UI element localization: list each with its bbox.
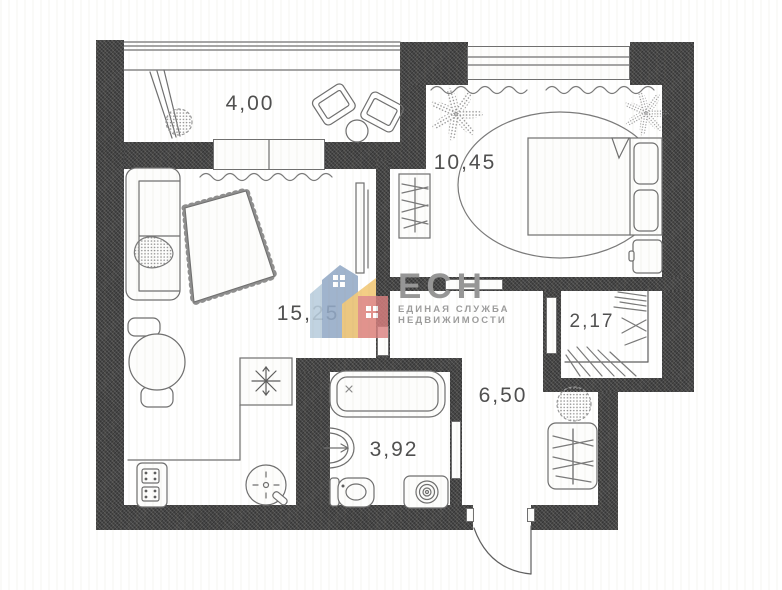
room-label-bedroom: 10,45 — [434, 151, 497, 175]
sofa-icon — [126, 168, 180, 300]
chair-icon — [141, 387, 173, 407]
toilet-icon — [330, 478, 374, 507]
armchair-icon — [311, 82, 358, 127]
blanket-fold — [612, 138, 629, 158]
room-label-hallway: 6,50 — [479, 384, 528, 408]
curtain-icon — [431, 87, 527, 94]
wardrobe-icon — [399, 174, 430, 238]
room-label-bathroom: 3,92 — [370, 438, 419, 462]
nightstand-icon — [629, 240, 662, 273]
bathroom-door — [451, 421, 461, 479]
bedroom-furniture — [399, 87, 669, 274]
curtain-icon — [200, 174, 332, 181]
refrigerator-icon — [240, 358, 292, 405]
stove-icon — [137, 463, 167, 507]
rug-icon — [458, 112, 662, 258]
wall-right — [662, 42, 694, 392]
bedroom-window — [467, 46, 630, 80]
plant-icon — [557, 387, 591, 421]
room-label-balcony: 4,00 — [226, 92, 275, 116]
wall-balcony-column — [400, 85, 426, 169]
pillow-icon — [634, 143, 658, 184]
side-table-icon — [346, 120, 368, 142]
balcony-window — [213, 139, 325, 170]
agency-tagline-line2: НЕДВИЖИМОСТИ — [398, 316, 510, 327]
pillow-icon — [634, 190, 658, 231]
plant-icon — [166, 109, 192, 135]
chair-icon — [128, 318, 160, 336]
wall-bath-left — [296, 358, 330, 505]
bed-icon — [528, 138, 662, 235]
wall-closet-bottom — [543, 378, 694, 392]
closet-door — [546, 297, 557, 354]
entrance-door-icon — [474, 526, 531, 574]
wall-hall-right — [598, 392, 618, 508]
wall-left — [96, 40, 124, 530]
wall-bottom-right — [531, 505, 618, 530]
kitchen-counter — [128, 405, 240, 460]
rug-icon — [185, 191, 274, 302]
houses-logo-icon — [308, 260, 392, 340]
kitchen-sink-icon — [246, 465, 288, 506]
blanket-icon — [134, 237, 173, 268]
agency-watermark: ЕСН ЕДИНАЯ СЛУЖБА НЕДВИЖИМОСТИ — [306, 258, 521, 344]
wardrobe-icon — [548, 423, 597, 489]
wall-top-lintel — [400, 42, 468, 85]
wall-bottom — [96, 505, 473, 530]
washing-machine-icon — [404, 476, 448, 508]
floor-plan: 4,00 10,45 15,25 2,17 6,50 3,92 ЕСН ЕДИН… — [0, 0, 782, 590]
drying-rack-icon — [150, 70, 180, 138]
agency-name: ЕСН — [398, 272, 510, 302]
bathtub-icon — [330, 371, 445, 417]
room-label-closet: 2,17 — [570, 311, 615, 333]
curtain-icon — [546, 87, 654, 94]
hallway-furniture — [474, 387, 597, 574]
entry-jamb-right — [527, 508, 535, 522]
wall-bath-top — [296, 358, 462, 372]
balcony-furniture — [150, 70, 405, 142]
plant-icon — [430, 87, 483, 142]
entry-jamb-left — [466, 508, 474, 522]
armchair-icon — [359, 90, 405, 133]
dining-table-icon — [128, 318, 185, 407]
